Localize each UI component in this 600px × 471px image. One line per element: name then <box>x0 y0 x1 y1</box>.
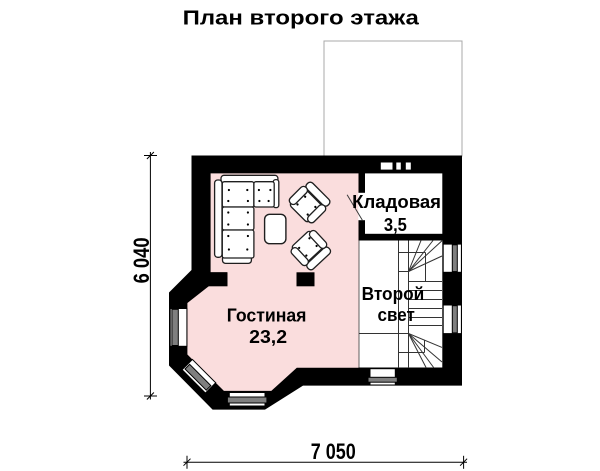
svg-text:23,2: 23,2 <box>249 326 287 347</box>
svg-text:свет: свет <box>378 305 415 325</box>
svg-text:План второго этажа: План второго этажа <box>183 7 420 30</box>
svg-text:Второй: Второй <box>362 284 425 304</box>
svg-text:Гостиная: Гостиная <box>227 304 307 325</box>
svg-text:6 040: 6 040 <box>129 237 154 283</box>
svg-text:7 050: 7 050 <box>311 439 356 464</box>
svg-text:3,5: 3,5 <box>384 215 407 235</box>
svg-text:Кладовая: Кладовая <box>352 192 441 212</box>
